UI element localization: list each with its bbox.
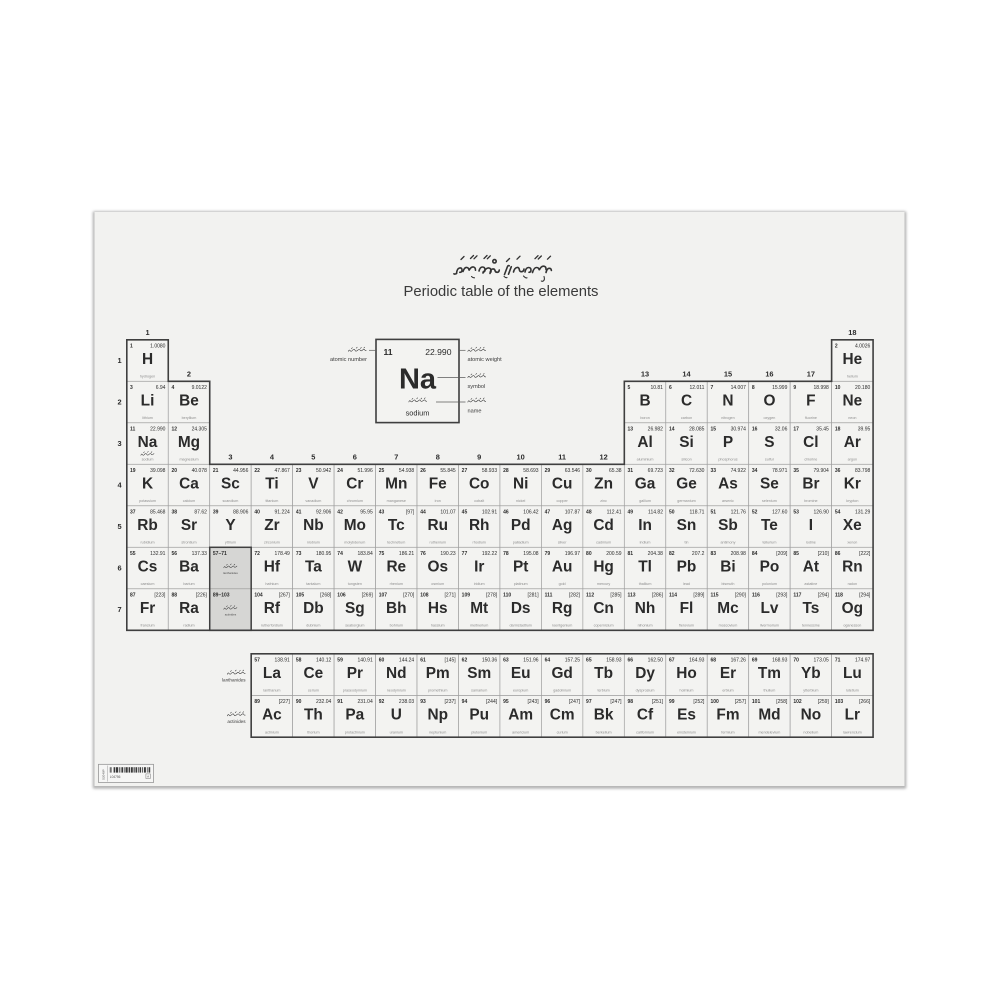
svg-text:11: 11 [130, 426, 136, 432]
svg-text:15: 15 [710, 426, 716, 432]
svg-text:52: 52 [752, 509, 758, 515]
svg-text:2: 2 [835, 343, 838, 349]
svg-text:27: 27 [462, 468, 468, 474]
svg-text:palladium: palladium [513, 541, 529, 545]
svg-text:Te: Te [761, 517, 778, 534]
svg-text:U: U [391, 707, 402, 724]
svg-text:Hf: Hf [264, 559, 281, 576]
svg-text:gadolinium: gadolinium [553, 689, 571, 693]
svg-text:44: 44 [420, 509, 426, 515]
svg-text:10.81: 10.81 [650, 385, 663, 391]
svg-text:europium: europium [513, 689, 528, 693]
svg-text:20: 20 [171, 468, 177, 474]
svg-text:59: 59 [337, 657, 343, 663]
svg-text:6.94: 6.94 [156, 385, 166, 391]
svg-text:21: 21 [213, 468, 219, 474]
svg-text:196.97: 196.97 [565, 551, 581, 557]
svg-text:4.0026: 4.0026 [855, 343, 871, 349]
svg-text:164.93: 164.93 [689, 657, 705, 663]
svg-text:18.998: 18.998 [814, 385, 830, 391]
svg-text:98: 98 [628, 699, 634, 705]
svg-text:90: 90 [296, 699, 302, 705]
svg-text:antimony: antimony [720, 541, 735, 545]
svg-text:Cn: Cn [593, 600, 614, 617]
svg-text:Es: Es [677, 707, 696, 724]
svg-text:Db: Db [303, 600, 324, 617]
svg-text:Co: Co [469, 476, 490, 493]
svg-text:nitrogen: nitrogen [721, 416, 734, 420]
svg-text:232.04: 232.04 [316, 699, 332, 705]
svg-text:hydrogen: hydrogen [140, 375, 155, 379]
svg-text:Sn: Sn [677, 517, 697, 534]
svg-text:[294]: [294] [818, 592, 830, 598]
svg-text:183.84: 183.84 [357, 551, 373, 557]
svg-text:167.26: 167.26 [731, 657, 747, 663]
svg-text:californium: californium [636, 730, 654, 734]
svg-text:tennessine: tennessine [802, 624, 820, 628]
svg-text:132.91: 132.91 [150, 551, 166, 557]
svg-text:Pa: Pa [345, 707, 364, 724]
svg-text:nihonium: nihonium [638, 624, 653, 628]
svg-text:Mt: Mt [470, 600, 488, 617]
svg-text:92.906: 92.906 [316, 509, 332, 515]
svg-text:Lu: Lu [843, 665, 862, 682]
svg-text:1: 1 [145, 328, 149, 337]
svg-text:22.990: 22.990 [425, 347, 452, 357]
svg-text:195.08: 195.08 [523, 551, 539, 557]
svg-text:5: 5 [117, 522, 121, 531]
svg-text:[251]: [251] [652, 699, 664, 705]
svg-text:77: 77 [462, 551, 468, 557]
svg-text:34: 34 [752, 468, 758, 474]
svg-text:7: 7 [394, 452, 398, 461]
svg-text:63.546: 63.546 [565, 468, 581, 474]
svg-text:87: 87 [130, 592, 136, 598]
svg-text:207.2: 207.2 [692, 551, 705, 557]
svg-text:actinium: actinium [265, 730, 279, 734]
svg-text:darmstadtium: darmstadtium [509, 624, 531, 628]
svg-text:[281]: [281] [527, 592, 539, 598]
svg-text:nobelium: nobelium [803, 730, 818, 734]
svg-text:39.95: 39.95 [858, 426, 871, 432]
svg-text:argon: argon [848, 458, 857, 462]
svg-text:Np: Np [427, 707, 448, 724]
svg-text:13: 13 [641, 369, 649, 378]
svg-text:89: 89 [254, 699, 260, 705]
svg-text:samarium: samarium [471, 689, 487, 693]
svg-text:58.933: 58.933 [482, 468, 498, 474]
svg-text:[270]: [270] [403, 592, 415, 598]
svg-text:bromine: bromine [804, 499, 817, 503]
svg-text:dubnium: dubnium [306, 624, 320, 628]
svg-text:102.91: 102.91 [482, 509, 498, 515]
svg-text:uranium: uranium [390, 730, 403, 734]
svg-text:29: 29 [545, 468, 551, 474]
svg-text:3: 3 [228, 452, 232, 461]
svg-text:127.60: 127.60 [772, 509, 788, 515]
svg-text:chlorine: chlorine [804, 458, 817, 462]
svg-text:neptunium: neptunium [429, 730, 446, 734]
svg-text:94: 94 [462, 699, 468, 705]
svg-text:117: 117 [793, 592, 801, 598]
svg-text:35: 35 [793, 468, 799, 474]
svg-text:actinides: actinides [225, 613, 237, 617]
svg-text:rubidium: rubidium [140, 541, 154, 545]
svg-text:[293]: [293] [776, 592, 788, 598]
svg-text:vanadium: vanadium [305, 499, 321, 503]
svg-text:S: S [764, 434, 774, 451]
svg-text:116: 116 [752, 592, 760, 598]
svg-text:4: 4 [171, 385, 174, 391]
svg-text:112.41: 112.41 [607, 509, 622, 515]
svg-text:151.96: 151.96 [523, 657, 539, 663]
svg-text:[243]: [243] [527, 699, 539, 705]
svg-text:Bi: Bi [720, 559, 735, 576]
svg-text:rutherfordium: rutherfordium [261, 624, 283, 628]
svg-text:36: 36 [835, 468, 841, 474]
svg-text:Si: Si [679, 434, 694, 451]
svg-text:78: 78 [503, 551, 509, 557]
svg-text:terbium: terbium [597, 689, 609, 693]
svg-text:7: 7 [710, 385, 713, 391]
svg-text:231.04: 231.04 [357, 699, 373, 705]
svg-text:Na: Na [399, 363, 437, 395]
svg-text:45: 45 [462, 509, 468, 515]
svg-text:111: 111 [545, 592, 553, 598]
svg-text:zirconium: zirconium [264, 541, 280, 545]
svg-text:Mc: Mc [717, 600, 739, 617]
svg-text:promethium: promethium [428, 689, 447, 693]
svg-text:selenium: selenium [762, 499, 777, 503]
svg-text:holmium: holmium [680, 689, 694, 693]
svg-text:thallium: thallium [639, 582, 652, 586]
svg-text:neon: neon [848, 416, 856, 420]
svg-text:Ga: Ga [635, 476, 656, 493]
svg-text:69.723: 69.723 [648, 468, 664, 474]
svg-text:99: 99 [669, 699, 675, 705]
svg-text:85: 85 [793, 551, 799, 557]
svg-text:[145]: [145] [445, 657, 457, 663]
svg-text:[289]: [289] [693, 592, 705, 598]
svg-text:Cr: Cr [346, 476, 363, 493]
svg-text:cobalt: cobalt [474, 499, 484, 503]
svg-text:106: 106 [337, 592, 346, 598]
svg-text:Ar: Ar [844, 434, 861, 451]
svg-text:3: 3 [130, 385, 133, 391]
svg-text:L04756: L04756 [110, 775, 121, 779]
svg-text:atomic number: atomic number [330, 357, 367, 363]
svg-text:16: 16 [752, 426, 758, 432]
svg-text:92: 92 [379, 699, 385, 705]
svg-text:[257]: [257] [735, 699, 747, 705]
svg-text:10: 10 [835, 385, 841, 391]
svg-text:38: 38 [171, 509, 177, 515]
svg-text:79.904: 79.904 [814, 468, 830, 474]
svg-text:He: He [843, 351, 863, 368]
svg-text:technetium: technetium [387, 541, 405, 545]
svg-text:Yb: Yb [801, 665, 821, 682]
svg-text:91: 91 [337, 699, 343, 705]
svg-text:Hg: Hg [593, 559, 614, 576]
svg-text:dysprosium: dysprosium [636, 689, 655, 693]
svg-text:Nb: Nb [303, 517, 324, 534]
svg-text:65: 65 [586, 657, 592, 663]
svg-text:238.03: 238.03 [399, 699, 415, 705]
svg-text:americium: americium [512, 730, 529, 734]
svg-text:strontium: strontium [181, 541, 196, 545]
svg-text:magnesium: magnesium [179, 458, 198, 462]
svg-text:Pm: Pm [426, 665, 450, 682]
svg-text:47.867: 47.867 [275, 468, 291, 474]
svg-text:Ni: Ni [513, 476, 528, 493]
svg-text:Nh: Nh [635, 600, 656, 617]
svg-text:Mo: Mo [344, 517, 366, 534]
svg-text:Bk: Bk [594, 707, 614, 724]
svg-text:87.62: 87.62 [194, 509, 207, 515]
svg-text:scandium: scandium [223, 499, 239, 503]
svg-text:95.95: 95.95 [360, 509, 373, 515]
svg-text:name: name [468, 409, 482, 415]
svg-text:Li: Li [141, 393, 155, 410]
svg-text:ytterbium: ytterbium [803, 689, 818, 693]
svg-text:84: 84 [752, 551, 758, 557]
svg-text:tantalum: tantalum [306, 582, 320, 586]
svg-text:Kr: Kr [844, 476, 861, 493]
svg-text:[210]: [210] [818, 551, 830, 557]
svg-text:arsenic: arsenic [722, 499, 734, 503]
svg-text:cadmium: cadmium [596, 541, 611, 545]
svg-text:91.224: 91.224 [275, 509, 291, 515]
svg-text:109: 109 [462, 592, 471, 598]
svg-text:131.29: 131.29 [855, 509, 871, 515]
svg-text:yttrium: yttrium [225, 541, 236, 545]
svg-text:Sm: Sm [467, 665, 491, 682]
svg-text:einsteinium: einsteinium [677, 730, 696, 734]
svg-text:Ce: Ce [304, 665, 324, 682]
svg-text:I: I [809, 517, 813, 534]
svg-text:Rg: Rg [552, 600, 573, 617]
svg-text:43: 43 [379, 509, 385, 515]
svg-text:[290]: [290] [735, 592, 747, 598]
svg-text:9: 9 [793, 385, 796, 391]
svg-text:Tm: Tm [758, 665, 781, 682]
svg-text:28: 28 [503, 468, 509, 474]
svg-text:47: 47 [545, 509, 551, 515]
svg-text:copernicium: copernicium [594, 624, 614, 628]
svg-text:lead: lead [683, 582, 690, 586]
svg-text:[252]: [252] [693, 699, 705, 705]
svg-text:Cm: Cm [550, 707, 575, 724]
svg-text:106.42: 106.42 [523, 509, 539, 515]
svg-text:[266]: [266] [859, 699, 871, 705]
svg-text:110: 110 [503, 592, 511, 598]
svg-text:126.90: 126.90 [814, 509, 830, 515]
svg-text:6: 6 [117, 564, 121, 573]
svg-text:30: 30 [586, 468, 592, 474]
svg-text:hafnium: hafnium [265, 582, 278, 586]
svg-text:Tb: Tb [594, 665, 613, 682]
svg-text:La: La [263, 665, 281, 682]
svg-text:gallium: gallium [639, 499, 651, 503]
svg-text:39.098: 39.098 [150, 468, 166, 474]
svg-text:Cu: Cu [552, 476, 573, 493]
svg-text:158.93: 158.93 [606, 657, 622, 663]
svg-text:Ra: Ra [179, 600, 199, 617]
svg-text:Rh: Rh [469, 517, 490, 534]
svg-text:85.468: 85.468 [150, 509, 166, 515]
svg-text:24: 24 [337, 468, 343, 474]
svg-text:115: 115 [710, 592, 718, 598]
svg-text:Ti: Ti [265, 476, 278, 493]
svg-text:23: 23 [296, 468, 302, 474]
svg-text:Os: Os [427, 559, 448, 576]
svg-text:8: 8 [752, 385, 755, 391]
svg-text:Bh: Bh [386, 600, 407, 617]
svg-text:oxygen: oxygen [763, 416, 775, 420]
svg-text:lithium: lithium [142, 416, 153, 420]
svg-text:32.06: 32.06 [775, 426, 788, 432]
svg-text:Rn: Rn [842, 559, 863, 576]
svg-text:oganesson: oganesson [843, 624, 861, 628]
svg-text:83: 83 [710, 551, 716, 557]
svg-text:lawrencium: lawrencium [843, 730, 862, 734]
svg-text:F: F [806, 393, 815, 410]
svg-text:[269]: [269] [362, 592, 374, 598]
svg-text:radon: radon [848, 582, 857, 586]
svg-text:germanium: germanium [677, 499, 695, 503]
svg-text:[247]: [247] [569, 699, 581, 705]
svg-text:Ac: Ac [262, 707, 282, 724]
svg-text:140.91: 140.91 [357, 657, 373, 663]
svg-text:69: 69 [752, 657, 758, 663]
svg-text:186.21: 186.21 [399, 551, 415, 557]
svg-text:polonium: polonium [762, 582, 777, 586]
svg-text:silicon: silicon [681, 458, 691, 462]
svg-text:Pd: Pd [511, 517, 531, 534]
svg-text:88.906: 88.906 [233, 509, 249, 515]
svg-text:14.007: 14.007 [731, 385, 747, 391]
svg-text:58.693: 58.693 [523, 468, 539, 474]
svg-text:162.50: 162.50 [648, 657, 664, 663]
svg-text:72: 72 [254, 551, 260, 557]
svg-text:lanthanides: lanthanides [222, 678, 246, 683]
svg-text:1.0080: 1.0080 [150, 343, 166, 349]
svg-text:Br: Br [802, 476, 819, 493]
svg-text:51: 51 [710, 509, 716, 515]
svg-text:hassium: hassium [431, 624, 445, 628]
svg-text:Og: Og [842, 600, 863, 617]
svg-text:55: 55 [130, 551, 136, 557]
svg-text:50: 50 [669, 509, 675, 515]
svg-text:18: 18 [835, 426, 841, 432]
svg-text:Gd: Gd [551, 665, 572, 682]
svg-text:Cl: Cl [803, 434, 818, 451]
svg-text:68: 68 [710, 657, 716, 663]
svg-text:71: 71 [835, 657, 841, 663]
svg-text:Ge: Ge [676, 476, 697, 493]
svg-text:barium: barium [183, 582, 194, 586]
svg-text:neodymium: neodymium [387, 689, 406, 693]
svg-text:8: 8 [436, 452, 440, 461]
svg-text:francium: francium [140, 624, 154, 628]
svg-text:erbium: erbium [722, 689, 733, 693]
svg-text:Am: Am [508, 707, 533, 724]
svg-text:1: 1 [130, 343, 133, 349]
svg-text:57–71: 57–71 [213, 551, 227, 557]
svg-text:17: 17 [807, 369, 815, 378]
svg-text:86: 86 [835, 551, 841, 557]
svg-text:ruthenium: ruthenium [430, 541, 446, 545]
svg-text:46: 46 [503, 509, 509, 515]
svg-text:Fl: Fl [680, 600, 694, 617]
svg-text:indium: indium [640, 541, 651, 545]
svg-text:190.23: 190.23 [440, 551, 456, 557]
svg-text:107.87: 107.87 [565, 509, 581, 515]
svg-text:70: 70 [793, 657, 799, 663]
svg-text:44.956: 44.956 [233, 468, 249, 474]
svg-text:Tl: Tl [638, 559, 652, 576]
svg-text:10: 10 [517, 452, 525, 461]
svg-text:Periodic table of the elements: Periodic table of the elements [404, 284, 599, 300]
svg-text:manganese: manganese [387, 499, 406, 503]
svg-text:Hs: Hs [428, 600, 448, 617]
svg-text:thorium: thorium [307, 730, 319, 734]
svg-text:173.05: 173.05 [814, 657, 830, 663]
svg-text:[267]: [267] [279, 592, 291, 598]
svg-text:89–103: 89–103 [213, 592, 230, 598]
svg-text:K: K [142, 476, 153, 493]
svg-text:Ba: Ba [179, 559, 199, 576]
svg-text:112: 112 [586, 592, 594, 598]
svg-text:[244]: [244] [486, 699, 498, 705]
svg-text:Er: Er [720, 665, 736, 682]
svg-text:Be: Be [179, 393, 199, 410]
svg-text:sulfur: sulfur [765, 458, 775, 462]
svg-text:potassium: potassium [139, 499, 156, 503]
svg-text:roentgenium: roentgenium [552, 624, 573, 628]
svg-text:118.71: 118.71 [690, 509, 705, 515]
svg-text:C: C [681, 393, 692, 410]
svg-text:meitnerium: meitnerium [470, 624, 488, 628]
svg-text:3: 3 [117, 439, 121, 448]
svg-text:51.996: 51.996 [357, 468, 373, 474]
svg-text:7: 7 [117, 605, 121, 614]
svg-text:berkelium: berkelium [596, 730, 612, 734]
svg-text:Sb: Sb [718, 517, 738, 534]
svg-text:14: 14 [669, 426, 675, 432]
svg-text:121.76: 121.76 [731, 509, 747, 515]
svg-text:[282]: [282] [569, 592, 581, 598]
svg-text:tellurium: tellurium [762, 541, 776, 545]
svg-text:6: 6 [669, 385, 672, 391]
svg-text:66: 66 [628, 657, 634, 663]
svg-text:mendelevium: mendelevium [758, 730, 780, 734]
svg-text:9: 9 [477, 452, 481, 461]
svg-text:iron: iron [435, 499, 441, 503]
svg-text:Cf: Cf [637, 707, 654, 724]
svg-text:sodium: sodium [142, 458, 154, 462]
svg-text:78.971: 78.971 [772, 468, 788, 474]
svg-text:Zr: Zr [264, 517, 279, 534]
svg-text:64: 64 [545, 657, 551, 663]
svg-text:phosphorus: phosphorus [718, 458, 737, 462]
svg-text:12: 12 [599, 452, 607, 461]
svg-text:In: In [638, 517, 652, 534]
svg-text:Re: Re [386, 559, 406, 576]
svg-text:Fm: Fm [716, 707, 739, 724]
svg-text:157.25: 157.25 [565, 657, 581, 663]
svg-text:Ir: Ir [474, 559, 484, 576]
